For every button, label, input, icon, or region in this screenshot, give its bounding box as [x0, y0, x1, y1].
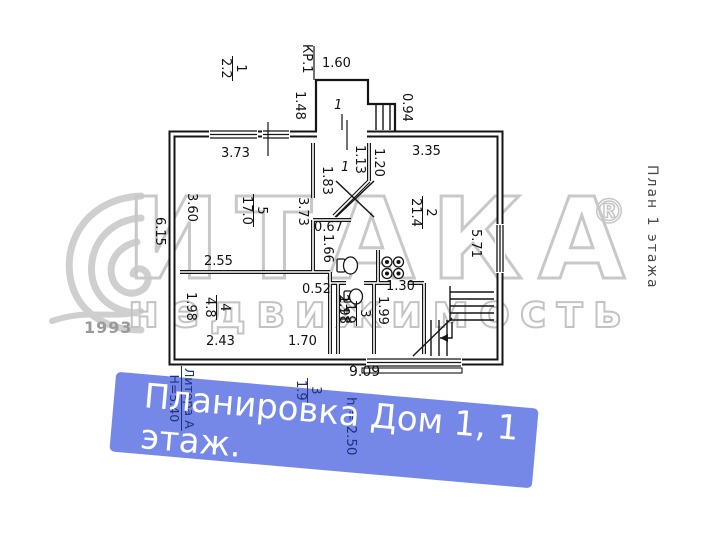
porch-callout-label: КР.1 [299, 44, 313, 73]
room-area: 1.9 [342, 301, 356, 326]
room-number: 3 [356, 301, 371, 326]
room2-area-label: 2 21.4 [408, 196, 437, 229]
dim-room5-top: 3.73 [221, 147, 250, 161]
stove-icon [382, 257, 404, 279]
cross-mark [336, 181, 374, 217]
dim-room4-left: 1.98 [183, 292, 197, 321]
room-number: 5 [253, 194, 268, 227]
dim-hall-3: 1.83 [319, 166, 333, 195]
room-number: 4 [216, 295, 231, 320]
dim-room2-right: 5.71 [468, 229, 482, 258]
entrance-opening [317, 129, 367, 139]
dim-total-width: 9.09 [349, 365, 380, 379]
dim-hall-2: 1.20 [371, 148, 385, 177]
porch-number: 1 [334, 99, 342, 113]
room-area: 17.0 [239, 194, 253, 227]
room-area: 21.4 [408, 196, 422, 229]
dim-room5-left: 3.60 [184, 193, 198, 222]
hall-number: 1 [341, 161, 349, 175]
dim-porch-stairs: 0.94 [399, 93, 413, 122]
dim-porch-width: 1.60 [322, 57, 351, 71]
dim-room5-right: 3.73 [295, 197, 309, 226]
room-area: 4.8 [202, 295, 216, 320]
porch-room-area-label: 1 2.2 [218, 56, 247, 81]
dim-passage: 0.52 [302, 283, 331, 297]
room5-area-label: 5 17.0 [239, 194, 268, 227]
dim-lobby-height: 1.99 [375, 296, 389, 325]
dim-room4-top: 2.55 [204, 255, 233, 269]
dim-kitchen-1: 0.67 [314, 221, 343, 235]
floorplan-page: ИТАКА ® недвижимость 1993 [0, 0, 702, 548]
room-area: 2.2 [218, 56, 232, 81]
dim-room2-top: 3.35 [412, 145, 441, 159]
room-number: 2 [422, 196, 437, 229]
dim-room4-bottom: 2.43 [206, 335, 235, 349]
dim-bottom-left: 1.70 [288, 335, 317, 349]
plan-title-vertical: План 1 этажа [645, 165, 659, 290]
dim-kitchen-2: 1.66 [320, 234, 334, 263]
room-number: 1 [232, 56, 247, 81]
dim-porch-height: 1.48 [292, 91, 306, 120]
stair-direction-arrow-icon [440, 334, 448, 342]
room4-area-label: 4 4.8 [202, 295, 231, 320]
dim-hall-1: 1.13 [352, 145, 366, 174]
sink-icon [337, 257, 358, 274]
room3-area-label: 3 1.9 [342, 301, 371, 326]
dim-left-outside: 6.15 [152, 217, 166, 246]
dim-lobby-width: 1.30 [386, 280, 415, 294]
